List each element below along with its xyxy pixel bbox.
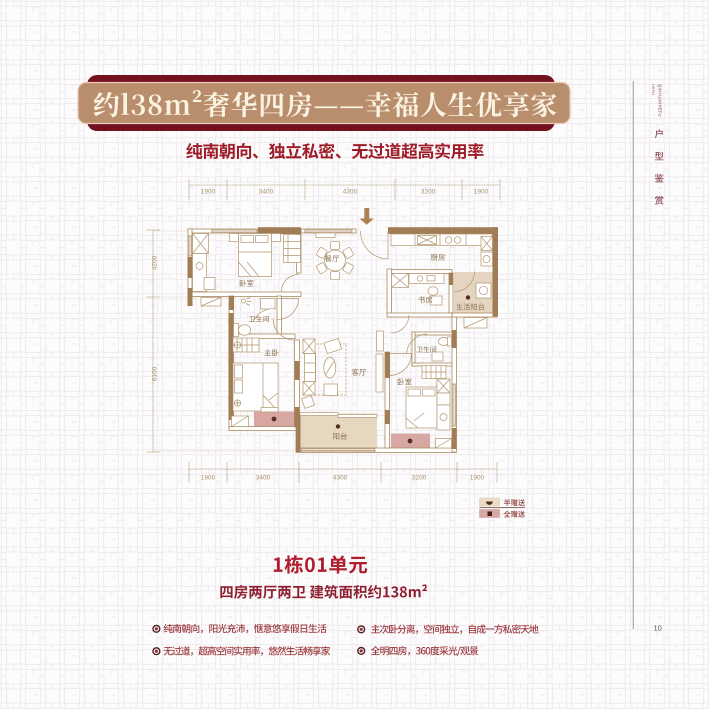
svg-text:1900: 1900 xyxy=(470,475,485,482)
svg-text:10: 10 xyxy=(654,624,662,633)
svg-text:6100: 6100 xyxy=(152,366,159,381)
svg-text:3200: 3200 xyxy=(421,189,436,196)
svg-text:HEFU: HEFU xyxy=(651,84,655,95)
svg-text:1900: 1900 xyxy=(201,189,216,196)
svg-text:3400: 3400 xyxy=(256,475,271,482)
svg-text:4200: 4200 xyxy=(152,255,159,270)
svg-text:1900: 1900 xyxy=(201,475,216,482)
svg-text:4300: 4300 xyxy=(343,189,358,196)
svg-text:3400: 3400 xyxy=(259,189,274,196)
svg-text:1900: 1900 xyxy=(474,189,489,196)
svg-text:QINYUANHEFU: QINYUANHEFU xyxy=(658,84,663,117)
svg-text:4300: 4300 xyxy=(333,475,348,482)
svg-text:3200: 3200 xyxy=(412,475,427,482)
